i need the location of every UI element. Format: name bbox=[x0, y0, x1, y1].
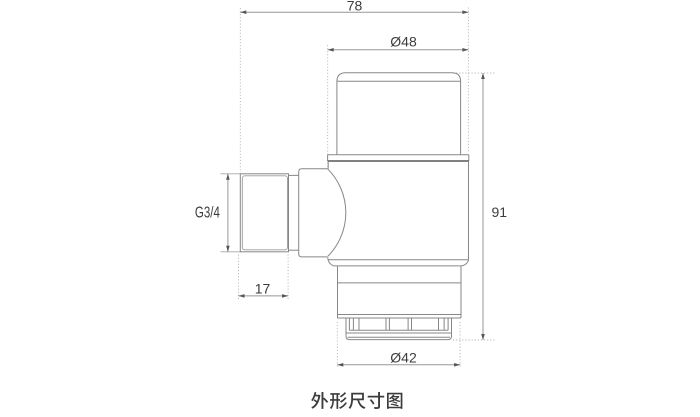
svg-text:17: 17 bbox=[255, 281, 271, 297]
svg-text:78: 78 bbox=[347, 0, 363, 14]
svg-text:Ø42: Ø42 bbox=[390, 349, 417, 365]
svg-text:91: 91 bbox=[492, 204, 508, 220]
svg-text:Ø48: Ø48 bbox=[390, 34, 417, 50]
svg-text:G3/4: G3/4 bbox=[195, 205, 220, 222]
